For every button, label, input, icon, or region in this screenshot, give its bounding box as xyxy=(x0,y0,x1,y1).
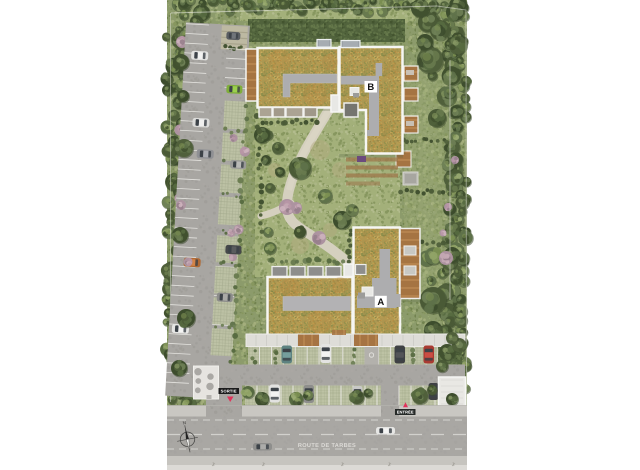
svg-text:A: A xyxy=(377,297,384,308)
svg-text:SORTIE: SORTIE xyxy=(221,389,237,394)
svg-text:ROUTE DE TARBES: ROUTE DE TARBES xyxy=(298,443,356,449)
svg-text:ENTRÉE: ENTRÉE xyxy=(397,410,414,415)
svg-text:B: B xyxy=(367,82,374,93)
